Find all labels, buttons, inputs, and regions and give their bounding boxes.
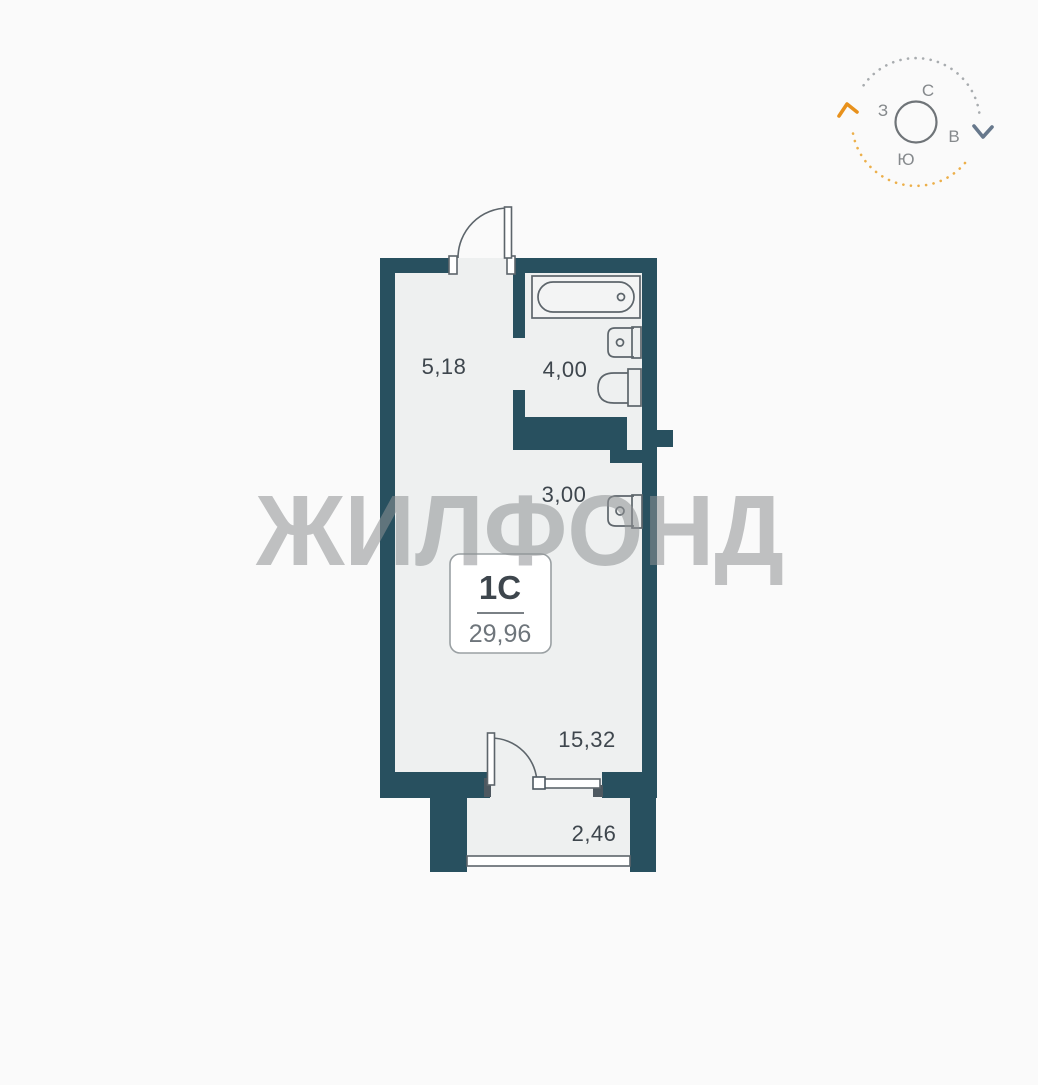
balcony-glazing-window: [467, 856, 630, 866]
compass-circle: [896, 102, 937, 143]
floorplan-canvas: 5,18 4,00 3,00 15,32 2,46 1С 29,96 ЖИЛФО…: [0, 0, 1038, 1080]
wall-top-right: [515, 258, 657, 273]
entrance-door-swing-arc: [458, 208, 508, 258]
living-balcony-window: [537, 779, 600, 788]
room-area-label-bathroom: 4,00: [543, 357, 588, 382]
entrance-door-jamb-left: [449, 256, 457, 274]
watermark-text: ЖИЛФОНД: [255, 475, 784, 587]
entrance-door-leaf: [505, 207, 512, 258]
compass-north-label: С: [922, 81, 934, 100]
bathtub-icon: [532, 276, 640, 318]
wall-duct-step: [610, 450, 657, 463]
wall-duct-block: [513, 417, 627, 450]
compass-west-label: З: [878, 101, 888, 120]
compass-east-label: В: [948, 127, 959, 146]
balcony-door-opening-floor: [490, 772, 537, 798]
compass-letters: С З В Ю: [878, 81, 960, 169]
wall-bath-partition-upper: [513, 273, 525, 338]
wall-balcony-pillar-left: [430, 798, 467, 872]
wall-bottom-right: [602, 772, 657, 798]
living-balcony-window-jamb: [533, 777, 545, 789]
wall-balcony-pillar-right: [630, 798, 656, 872]
rotate-clockwise-arrow-icon[interactable]: [974, 126, 992, 137]
wall-bath-partition-lower: [513, 390, 525, 417]
room-area-label-living-room: 15,32: [558, 727, 616, 752]
compass-south-label: Ю: [897, 150, 914, 169]
wall-outer-stub: [657, 430, 673, 447]
room-area-label-hallway: 5,18: [422, 354, 467, 379]
unit-total-area-label: 29,96: [469, 620, 532, 648]
room-area-label-balcony: 2,46: [572, 821, 617, 846]
entrance-opening-floor: [456, 258, 508, 273]
compass-widget: С З В Ю: [839, 58, 992, 186]
balcony-door-leaf: [488, 733, 495, 785]
wall-bottom-left: [380, 772, 490, 798]
rotate-counterclockwise-arrow-icon[interactable]: [839, 104, 857, 116]
